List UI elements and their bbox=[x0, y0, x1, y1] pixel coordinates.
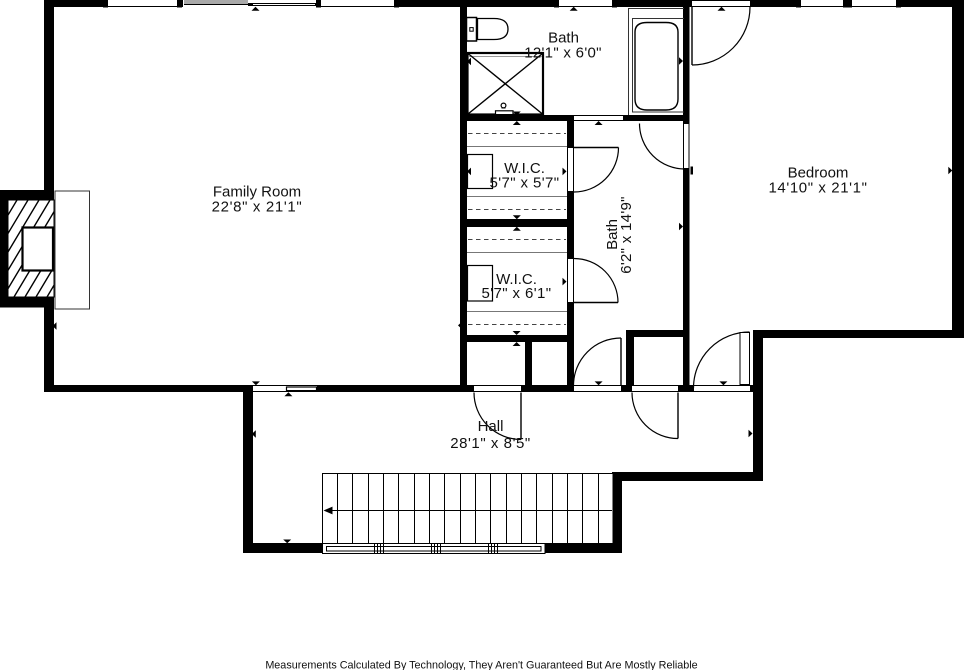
svg-text:28'1" x 8'5": 28'1" x 8'5" bbox=[450, 435, 531, 452]
svg-text:22'8" x 21'1": 22'8" x 21'1" bbox=[212, 199, 303, 216]
svg-text:6'2" x 14'9": 6'2" x 14'9" bbox=[618, 196, 635, 274]
svg-text:14'10" x 21'1": 14'10" x 21'1" bbox=[768, 179, 867, 196]
svg-text:Measurements Calculated By Tec: Measurements Calculated By Technology, T… bbox=[265, 660, 697, 670]
svg-text:12'1" x 6'0": 12'1" x 6'0" bbox=[524, 45, 602, 62]
svg-text:Hall: Hall bbox=[478, 418, 504, 435]
svg-text:5'7" x 5'7": 5'7" x 5'7" bbox=[490, 175, 560, 192]
svg-text:5'7" x 6'1": 5'7" x 6'1" bbox=[482, 285, 552, 302]
